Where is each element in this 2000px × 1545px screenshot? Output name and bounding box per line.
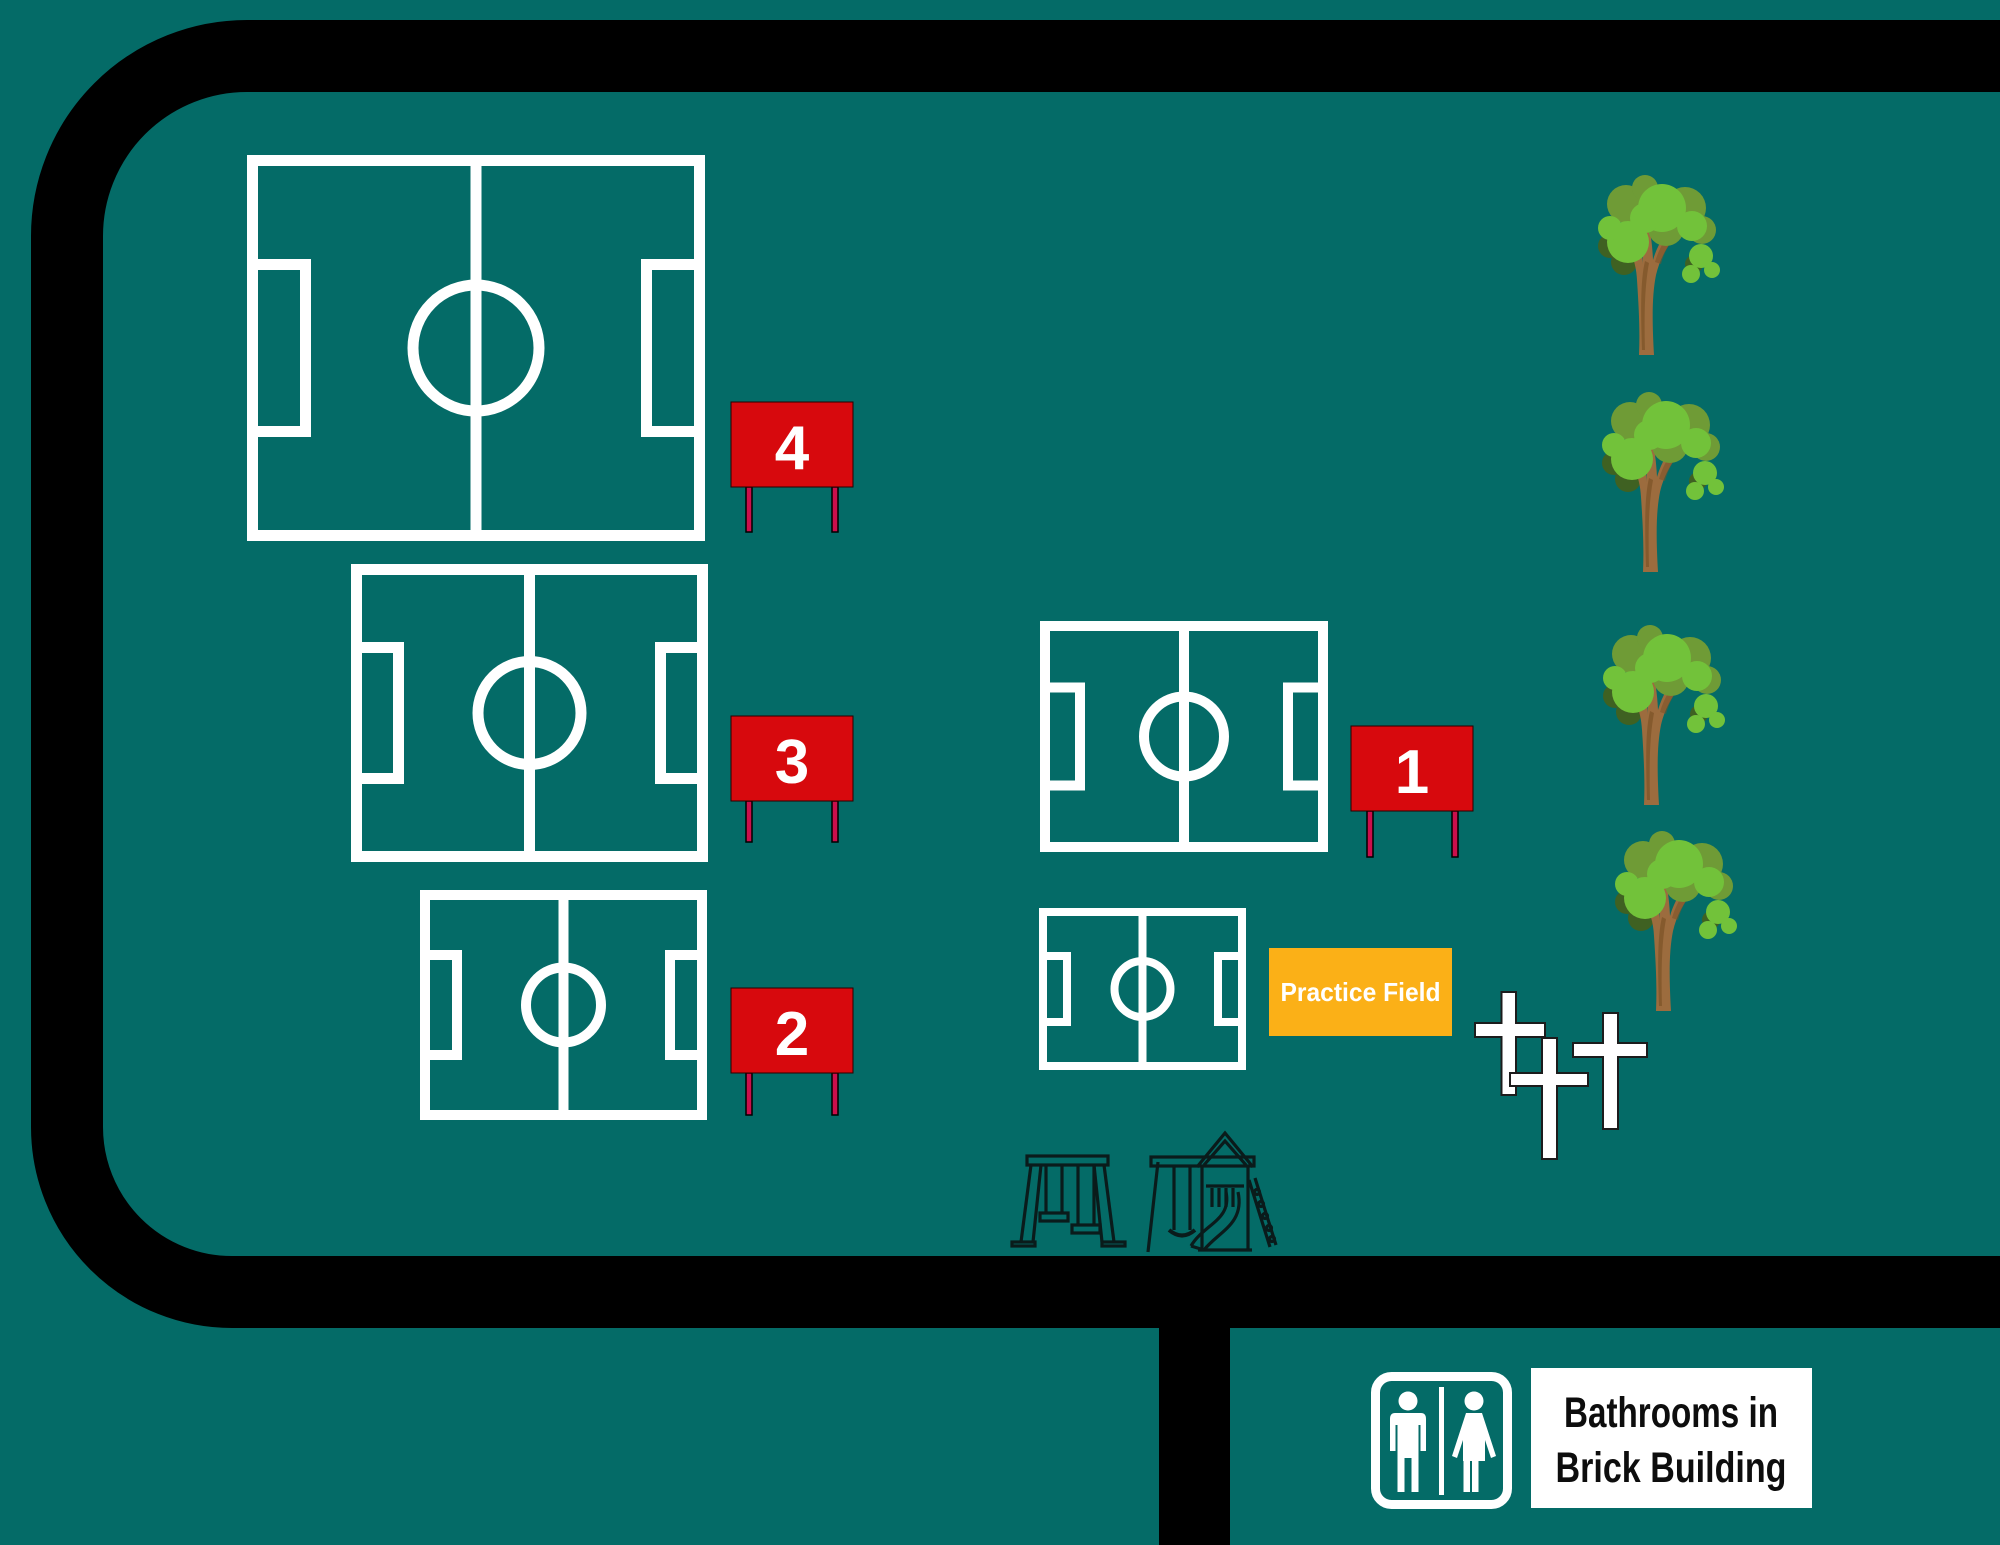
svg-text:Practice Field: Practice Field	[1281, 977, 1441, 1007]
svg-text:4: 4	[775, 414, 810, 483]
svg-text:Bathrooms in: Bathrooms in	[1564, 1389, 1778, 1437]
svg-text:Brick Building: Brick Building	[1556, 1444, 1787, 1492]
svg-text:1: 1	[1395, 738, 1429, 807]
svg-text:3: 3	[775, 728, 809, 797]
svg-text:2: 2	[775, 1000, 809, 1069]
